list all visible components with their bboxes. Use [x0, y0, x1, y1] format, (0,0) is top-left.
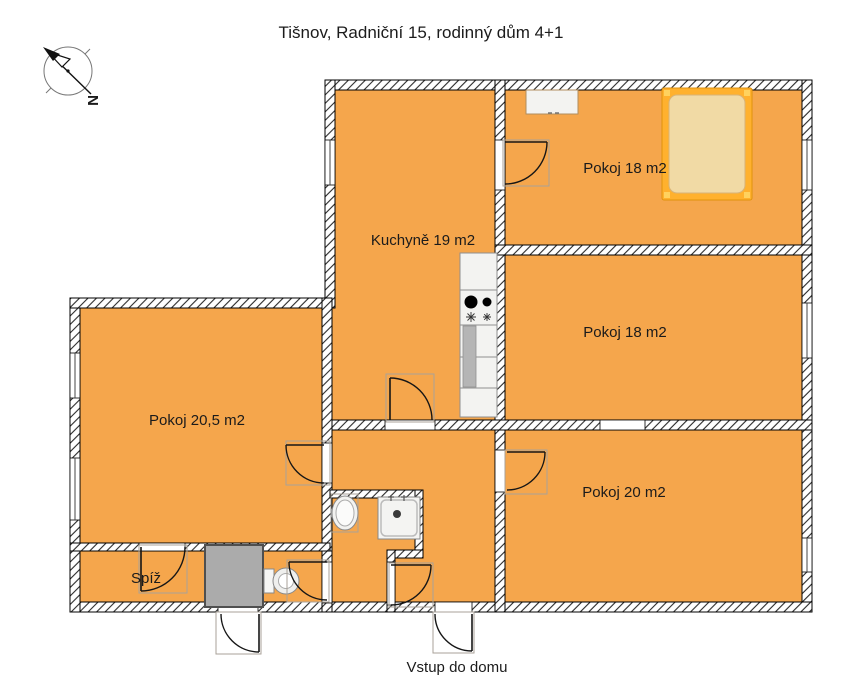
page-title: Tišnov, Radniční 15, rodinný dům 4+1 — [279, 23, 564, 42]
window-icon — [70, 353, 80, 398]
room-label-room-top: Pokoj 18 m2 — [583, 160, 666, 177]
door-icon — [221, 614, 259, 652]
kitchen-unit — [460, 253, 497, 417]
shower-icon — [378, 495, 420, 539]
floor-plan-page: Tišnov, Radniční 15, rodinný dům 4+1 N — [0, 0, 852, 695]
bed — [662, 88, 752, 200]
room-label-kitchen: Kuchyně 19 m2 — [371, 232, 475, 249]
wardrobe — [526, 90, 578, 114]
room-label-pantry: Spíž — [131, 570, 161, 587]
window-icon — [802, 538, 812, 572]
floor-plan: Tišnov, Radniční 15, rodinný dům 4+1 N — [0, 0, 852, 695]
compass-n-label: N — [84, 95, 101, 106]
north-arrow-icon: N — [43, 47, 101, 106]
window-icon — [802, 303, 812, 358]
staircase-block — [205, 545, 263, 607]
room-label-room-middle: Pokoj 18 m2 — [583, 324, 666, 341]
window-icon — [70, 458, 80, 520]
room-label-room-left: Pokoj 20,5 m2 — [149, 412, 245, 429]
room-label-room-bottom: Pokoj 20 m2 — [582, 484, 665, 501]
entrance-label: Vstup do domu — [407, 659, 508, 676]
window-icon — [325, 140, 335, 185]
door-icon — [435, 614, 472, 651]
window-icon — [802, 140, 812, 190]
